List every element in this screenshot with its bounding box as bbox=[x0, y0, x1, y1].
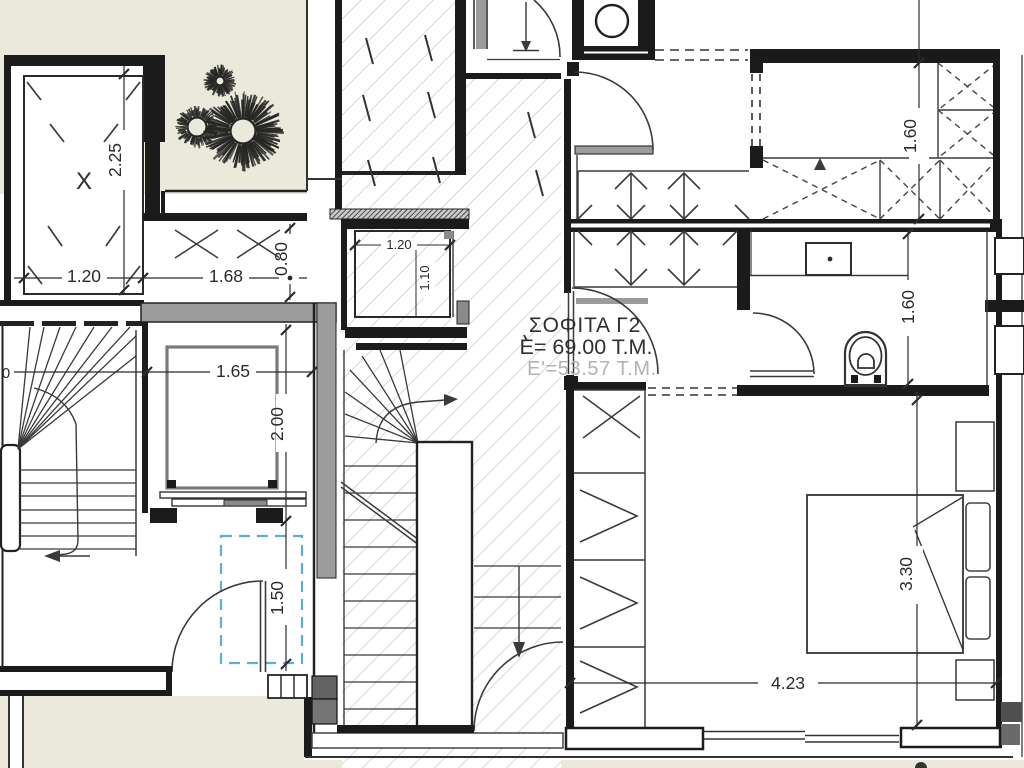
svg-text:2.00: 2.00 bbox=[267, 407, 287, 441]
svg-text:1.20: 1.20 bbox=[67, 266, 101, 286]
svg-text:1.68: 1.68 bbox=[209, 266, 243, 286]
svg-text:0.80: 0.80 bbox=[271, 242, 291, 276]
svg-text:2.25: 2.25 bbox=[105, 143, 125, 177]
svg-text:1.50: 1.50 bbox=[267, 581, 287, 615]
svg-text:1.60: 1.60 bbox=[900, 119, 920, 153]
svg-text:4.23: 4.23 bbox=[771, 673, 805, 693]
svg-text:0: 0 bbox=[2, 365, 10, 382]
svg-text:1.20: 1.20 bbox=[386, 237, 411, 252]
svg-text:3.30: 3.30 bbox=[896, 557, 916, 591]
svg-text:Χ: Χ bbox=[76, 168, 92, 195]
svg-text:1.60: 1.60 bbox=[898, 290, 918, 324]
svg-text:Ε= 69.00 Τ.Μ.: Ε= 69.00 Τ.Μ. bbox=[520, 335, 653, 359]
svg-text:1.10: 1.10 bbox=[417, 265, 432, 290]
svg-text:ΣΟΦΙΤΑ Γ2: ΣΟΦΙΤΑ Γ2 bbox=[529, 314, 641, 337]
svg-text:Ε'=53.57 Τ.Μ.: Ε'=53.57 Τ.Μ. bbox=[527, 358, 657, 380]
svg-text:1.65: 1.65 bbox=[216, 361, 250, 381]
